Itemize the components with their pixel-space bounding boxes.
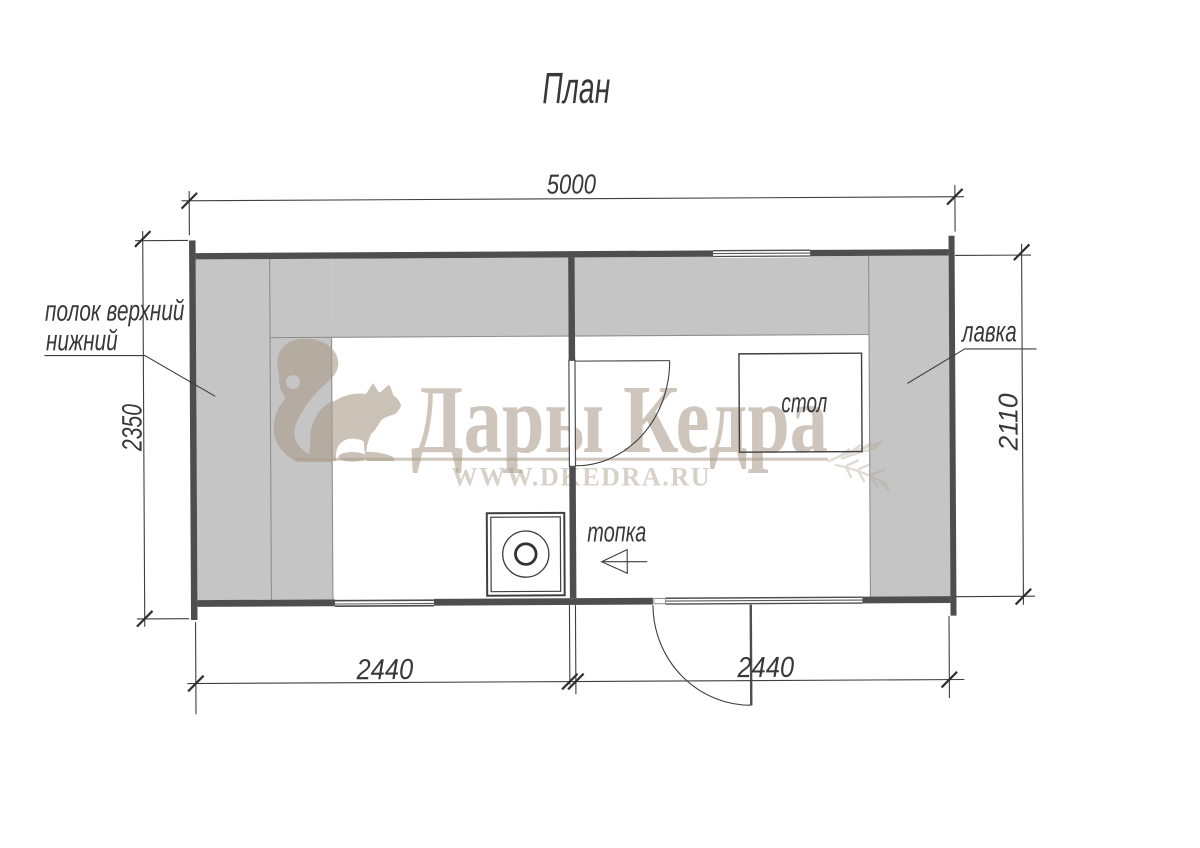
svg-text:План: План (542, 64, 610, 113)
svg-text:5000: 5000 (547, 168, 597, 199)
svg-text:стол: стол (781, 387, 827, 418)
svg-text:2440: 2440 (737, 652, 795, 684)
svg-text:2440: 2440 (356, 654, 414, 686)
svg-text:полок верхний: полок верхний (45, 295, 185, 328)
svg-text:2110: 2110 (993, 393, 1023, 451)
svg-text:нижний: нижний (46, 325, 118, 357)
svg-text:2350: 2350 (116, 404, 147, 452)
svg-text:топка: топка (587, 516, 646, 547)
svg-text:лавка: лавка (960, 316, 1016, 348)
